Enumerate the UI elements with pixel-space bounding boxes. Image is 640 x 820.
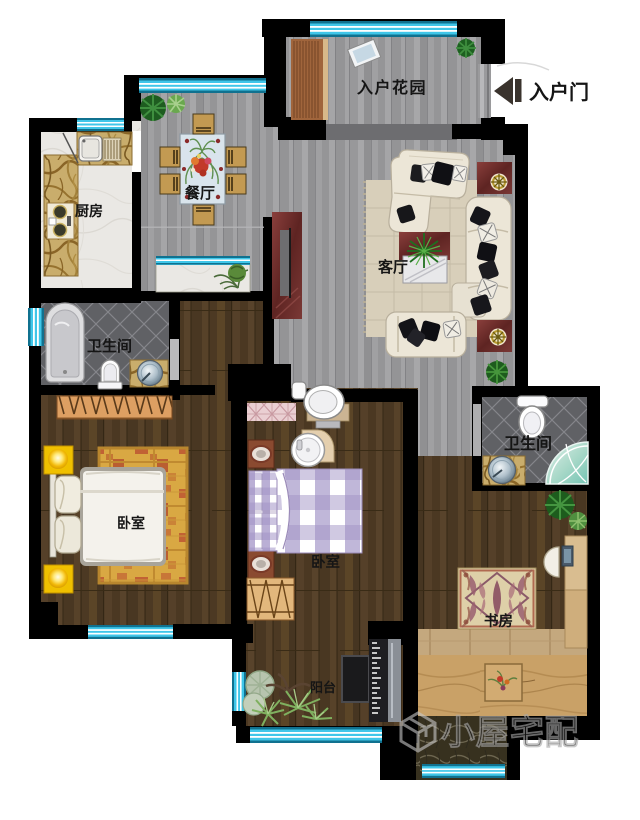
svg-text:卧室: 卧室 bbox=[311, 553, 340, 571]
svg-text:卫生间: 卫生间 bbox=[87, 337, 132, 355]
svg-text:书房: 书房 bbox=[484, 612, 513, 630]
svg-text:卧室: 卧室 bbox=[117, 515, 145, 531]
svg-text:卫生间: 卫生间 bbox=[504, 434, 552, 453]
svg-text:厨房: 厨房 bbox=[75, 203, 103, 219]
svg-text:阳台: 阳台 bbox=[310, 680, 336, 695]
svg-text:入户花园: 入户花园 bbox=[357, 78, 427, 97]
svg-text:小屋宅配: 小屋宅配 bbox=[441, 713, 579, 752]
svg-text:客厅: 客厅 bbox=[377, 258, 408, 276]
svg-text:餐厅: 餐厅 bbox=[185, 184, 215, 202]
svg-text:入户门: 入户门 bbox=[529, 80, 589, 104]
